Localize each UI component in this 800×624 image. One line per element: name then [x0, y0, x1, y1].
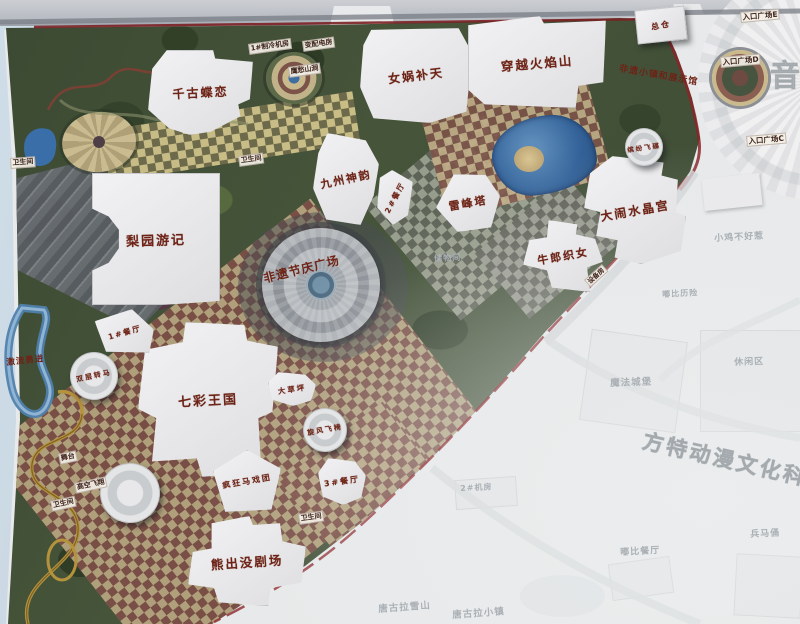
label-shebeifang: 设备房	[584, 264, 608, 287]
label-bingmayong: 兵马俑	[750, 528, 781, 541]
label-dubi-canting: 嘟比餐厅	[620, 546, 661, 559]
label-bianpeidianfang: 变配电房	[302, 37, 335, 52]
label-xiuxianqu: 休闲区	[734, 357, 764, 369]
label-watermark-yin: 音	[770, 58, 800, 96]
label-feiyi-xiaozhen: 非遗小镇和展示馆	[618, 64, 699, 89]
label-tanggula-xiaozhen: 唐古拉小镇	[452, 606, 505, 622]
label-jifang-2: 2#机房	[460, 482, 493, 494]
label-wutai: 舞台	[58, 450, 78, 464]
label-weishengjian-n: 卫生间	[238, 153, 264, 167]
label-rukou-guangchang-d: 入口广场D	[720, 53, 761, 68]
label-jiliu-yongjin: 激流勇进	[6, 354, 45, 369]
label-tanggula-xueshan: 唐古拉雪山	[378, 600, 431, 616]
label-zhilengjifang: 1#制冷机房	[248, 38, 292, 55]
label-chuwujian: 储物间	[434, 253, 461, 264]
label-weishengjian-s: 卫生间	[298, 511, 324, 525]
theme-park-map-photo: 千古蝶恋女娲补天穿越火焰山总仓九州神韵2#餐厅雷峰塔大闹水晶宫牛郎织女梨园游记七…	[0, 0, 800, 624]
label-rukou-guangchang-e: 入口广场E	[740, 9, 780, 24]
label-yingchoushanjian: 鹰愁山涧	[288, 63, 321, 78]
label-gaokong-feixiang: 高空飞翔	[74, 476, 108, 493]
label-xiaoji-buhaore: 小鸡不好惹	[714, 231, 765, 245]
label-watermark-fantawild: 方特动漫文化科技	[640, 428, 800, 497]
label-weishengjian-nw: 卫生间	[10, 156, 36, 168]
label-weishengjian-sw: 卫生间	[50, 496, 77, 512]
label-rukou-guangchang-c: 入口广场C	[746, 133, 786, 148]
labels-layer: 1#制冷机房变配电房鹰愁山涧卫生间卫生间卫生间舞台高空飞翔卫生间设备房入口广场E…	[0, 0, 800, 624]
label-mofa-chengbao: 魔法城堡	[610, 377, 652, 390]
label-feiyi-jieqing-guangchang: 非遗节庆广场	[262, 253, 341, 286]
label-dubi-lixian: 嘟比历险	[662, 288, 698, 300]
